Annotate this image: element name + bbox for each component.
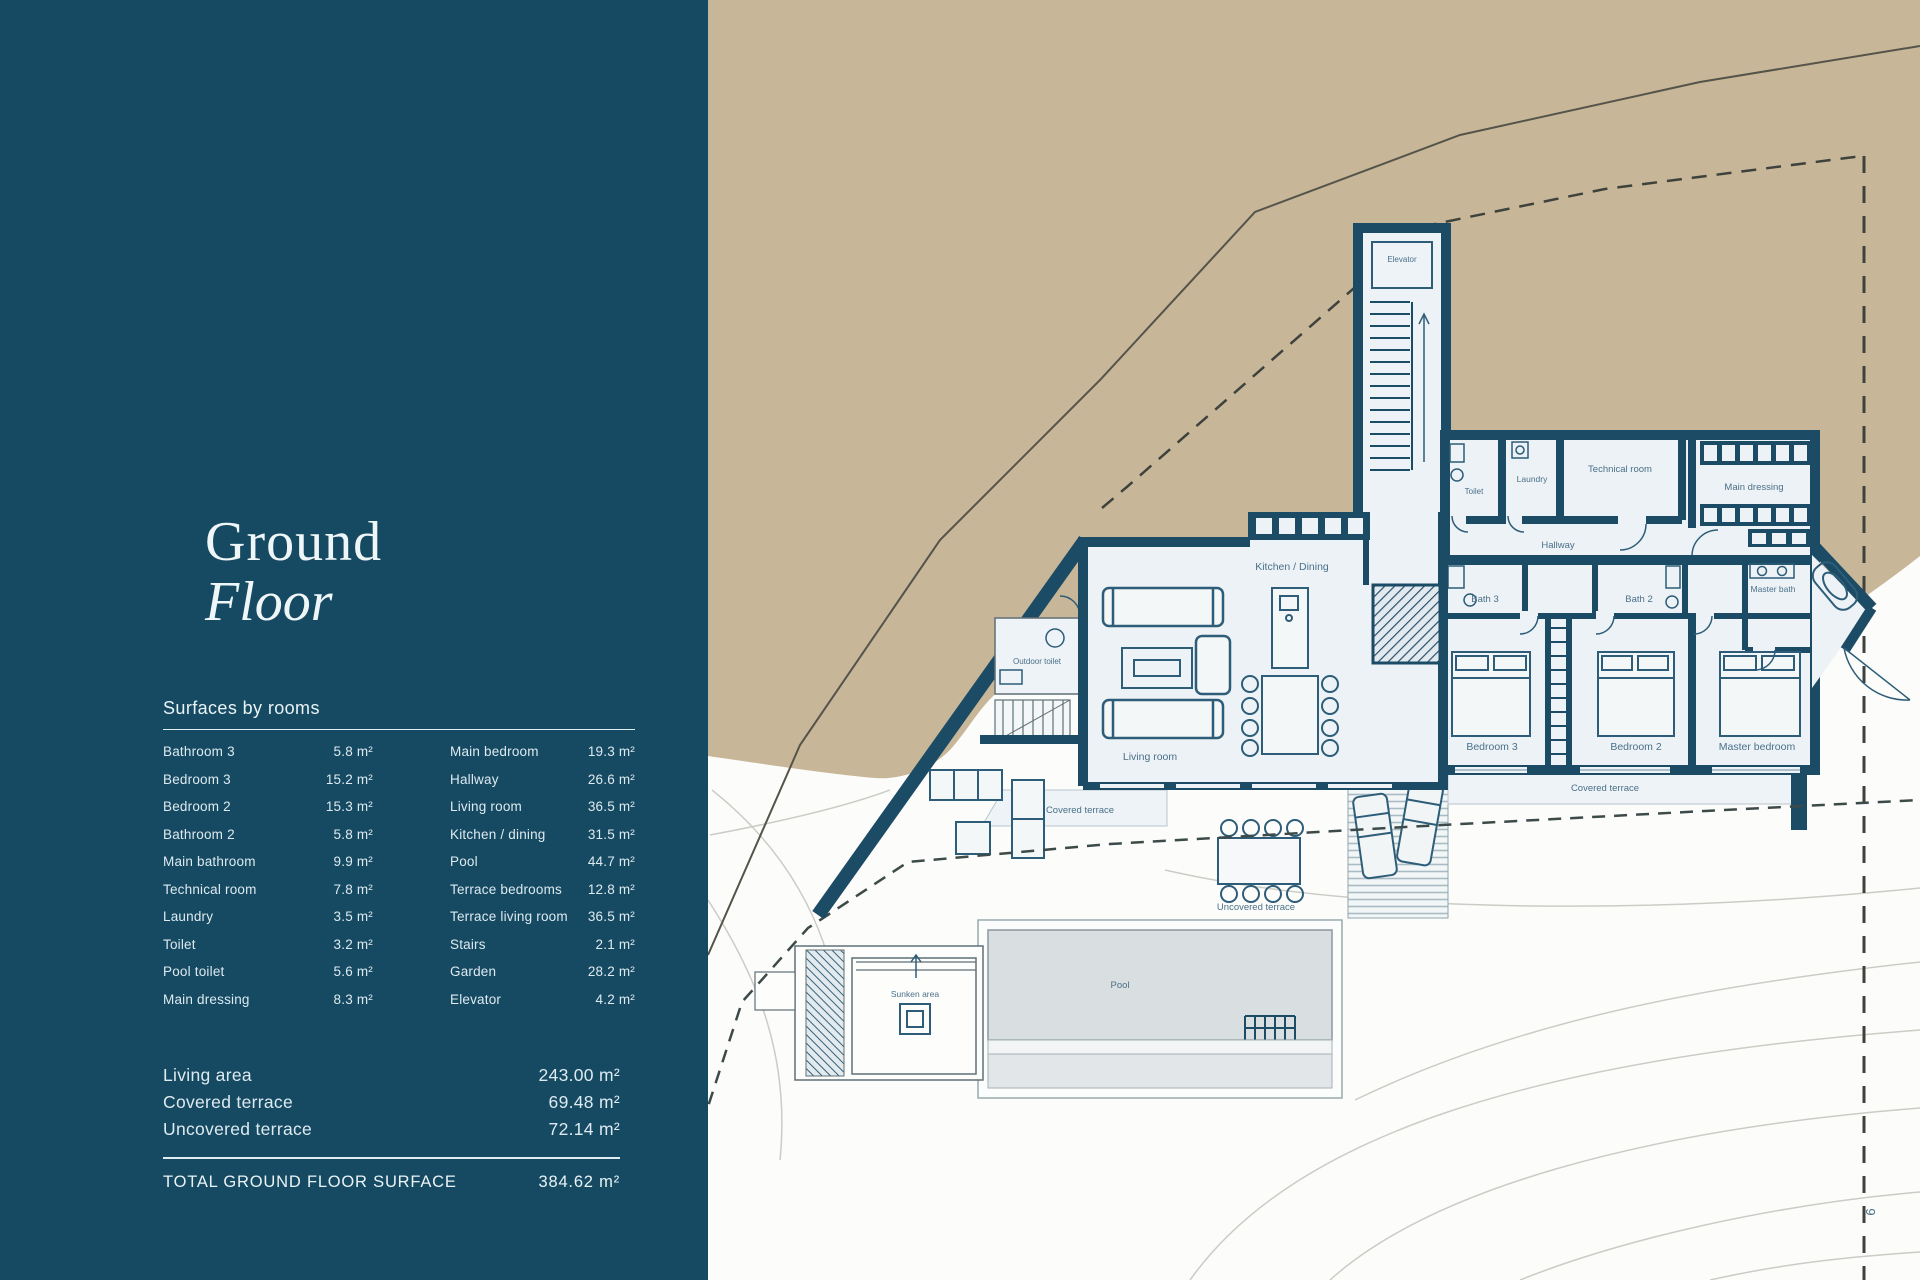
label-kitchen-dining: Kitchen / Dining — [1255, 561, 1329, 573]
table-row: Bathroom 35.8 m²Main bedroom19.3 m² — [163, 738, 635, 766]
room-value: 36.5 m² — [582, 793, 635, 821]
room-label: Hallway — [450, 766, 582, 794]
room-label: Living room — [450, 793, 582, 821]
room-value: 3.2 m² — [315, 931, 373, 959]
terrace-end-wall — [1791, 766, 1807, 830]
label-pool: Pool — [1110, 980, 1129, 991]
interior-patio-hatch — [1373, 585, 1440, 663]
room-value: 5.8 m² — [315, 738, 373, 766]
room-label: Toilet — [163, 931, 315, 959]
grand-total-value: 384.62 m² — [539, 1173, 621, 1192]
room-value: 15.2 m² — [315, 766, 373, 794]
room-value: 28.2 m² — [582, 958, 635, 986]
total-row: Uncovered terrace72.14 m² — [163, 1116, 620, 1143]
room-value: 5.6 m² — [315, 958, 373, 986]
surfaces-table: Surfaces by rooms Bathroom 35.8 m²Main b… — [163, 698, 635, 1013]
room-value: 5.8 m² — [315, 821, 373, 849]
surfaces-table-header: Surfaces by rooms — [163, 698, 635, 730]
room-value: 12.8 m² — [582, 876, 635, 904]
kitchen-island-icon — [1272, 588, 1308, 668]
room-value: 31.5 m² — [582, 821, 635, 849]
room-label: Pool toilet — [163, 958, 315, 986]
label-master-bedroom: Master bedroom — [1719, 741, 1796, 753]
table-row: Main bathroom9.9 m²Pool44.7 m² — [163, 848, 635, 876]
room-value: 4.2 m² — [582, 986, 635, 1014]
pool-water — [988, 930, 1332, 1040]
exterior-stairs-icon — [980, 700, 1082, 744]
label-covered-terrace-bedrooms: Covered terrace — [1571, 783, 1639, 794]
armchair-icon — [1196, 636, 1230, 694]
total-row: Covered terrace69.48 m² — [163, 1089, 620, 1116]
table-row: Toilet3.2 m²Stairs2.1 m² — [163, 931, 635, 959]
room-label: Main bedroom — [450, 738, 582, 766]
room-label: Terrace bedrooms — [450, 876, 582, 904]
label-laundry: Laundry — [1517, 474, 1548, 484]
label-sunken-area: Sunken area — [891, 989, 939, 999]
room-label: Technical room — [163, 876, 315, 904]
kitchen-window-band — [1248, 512, 1370, 540]
total-label: Uncovered terrace — [163, 1116, 312, 1143]
room-value: 44.7 m² — [582, 848, 635, 876]
bed-icon — [1598, 652, 1674, 736]
page-title: Ground Floor — [205, 512, 382, 632]
elevator-cab — [1372, 242, 1432, 288]
room-value: 15.3 m² — [315, 793, 373, 821]
total-label: Covered terrace — [163, 1089, 293, 1116]
room-label: Stairs — [450, 931, 582, 959]
table-row: Pool toilet5.6 m²Garden28.2 m² — [163, 958, 635, 986]
room-label: Bedroom 2 — [163, 793, 315, 821]
table-row: Main dressing8.3 m²Elevator4.2 m² — [163, 986, 635, 1014]
table-row: Technical room7.8 m²Terrace bedrooms12.8… — [163, 876, 635, 904]
label-elevator: Elevator — [1387, 255, 1417, 264]
label-uncovered-terrace: Uncovered terrace — [1217, 902, 1295, 913]
room-label: Elevator — [450, 986, 582, 1014]
total-value: 243.00 m² — [539, 1062, 621, 1089]
total-value: 72.14 m² — [549, 1116, 620, 1143]
planting-strip — [806, 950, 844, 1076]
label-bedroom-2: Bedroom 2 — [1610, 741, 1662, 753]
label-main-dressing: Main dressing — [1724, 482, 1783, 493]
label-technical-room: Technical room — [1588, 464, 1652, 475]
bed-icon — [1452, 652, 1530, 736]
room-label: Kitchen / dining — [450, 821, 582, 849]
label-living-room: Living room — [1123, 751, 1178, 763]
page-title-line1: Ground — [205, 512, 382, 572]
room-value: 9.9 m² — [315, 848, 373, 876]
pool-overflow-band — [988, 1040, 1332, 1054]
room-value: 2.1 m² — [582, 931, 635, 959]
bed-icon — [1720, 652, 1800, 736]
room-label: Bedroom 3 — [163, 766, 315, 794]
table-row: Bedroom 215.3 m²Living room36.5 m² — [163, 793, 635, 821]
grand-total-divider — [163, 1157, 620, 1159]
room-label: Laundry — [163, 903, 315, 931]
floor-plan-area: Elevator Toilet Laundry Technical room M… — [708, 0, 1920, 1280]
page-number: 9 — [1863, 1208, 1878, 1215]
grand-total-row: TOTAL GROUND FLOOR SURFACE 384.62 m² — [163, 1173, 620, 1192]
room-value: 7.8 m² — [315, 876, 373, 904]
room-label: Bathroom 2 — [163, 821, 315, 849]
surfaces-table-body: Bathroom 35.8 m²Main bedroom19.3 m² Bedr… — [163, 738, 635, 1013]
pool-lower-band — [988, 1054, 1332, 1088]
total-value: 69.48 m² — [549, 1089, 620, 1116]
label-master-bath: Master bath — [1751, 584, 1796, 594]
room-label: Bathroom 3 — [163, 738, 315, 766]
sofa-icon — [1103, 700, 1223, 738]
grand-total-label: TOTAL GROUND FLOOR SURFACE — [163, 1173, 457, 1192]
table-row: Bathroom 25.8 m²Kitchen / dining31.5 m² — [163, 821, 635, 849]
label-bath-3: Bath 3 — [1471, 594, 1498, 605]
label-toilet: Toilet — [1465, 487, 1484, 496]
closet-icon — [1748, 529, 1810, 547]
brochure-page: Ground Floor Surfaces by rooms Bathroom … — [0, 0, 1920, 1280]
table-row: Bedroom 315.2 m²Hallway26.6 m² — [163, 766, 635, 794]
room-label: Garden — [450, 958, 582, 986]
label-outdoor-toilet: Outdoor toilet — [1013, 657, 1062, 666]
room-label: Main dressing — [163, 986, 315, 1014]
label-bedroom-3: Bedroom 3 — [1466, 741, 1518, 753]
table-row: Laundry3.5 m²Terrace living room36.5 m² — [163, 903, 635, 931]
room-value: 36.5 m² — [582, 903, 635, 931]
room-value: 19.3 m² — [582, 738, 635, 766]
room-value: 8.3 m² — [315, 986, 373, 1014]
room-label: Pool — [450, 848, 582, 876]
label-covered-terrace-living: Covered terrace — [1046, 805, 1114, 816]
room-label: Main bathroom — [163, 848, 315, 876]
label-hallway: Hallway — [1541, 540, 1575, 551]
entry-platform — [755, 972, 795, 1010]
page-title-line2: Floor — [205, 572, 382, 632]
sidebar: Ground Floor Surfaces by rooms Bathroom … — [0, 0, 708, 1280]
room-value: 3.5 m² — [315, 903, 373, 931]
total-row: Living area243.00 m² — [163, 1062, 620, 1089]
label-bath-2: Bath 2 — [1625, 594, 1652, 605]
room-label: Terrace living room — [450, 903, 582, 931]
elevator-shaft — [1358, 228, 1446, 520]
pool — [978, 920, 1342, 1098]
floor-plan-svg: Elevator Toilet Laundry Technical room M… — [708, 0, 1920, 1280]
living-kitchen-block — [1078, 512, 1448, 790]
sofa-icon — [1103, 588, 1223, 626]
room-value: 26.6 m² — [582, 766, 635, 794]
totals-section: Living area243.00 m² Covered terrace69.4… — [163, 1062, 620, 1143]
total-label: Living area — [163, 1062, 252, 1089]
